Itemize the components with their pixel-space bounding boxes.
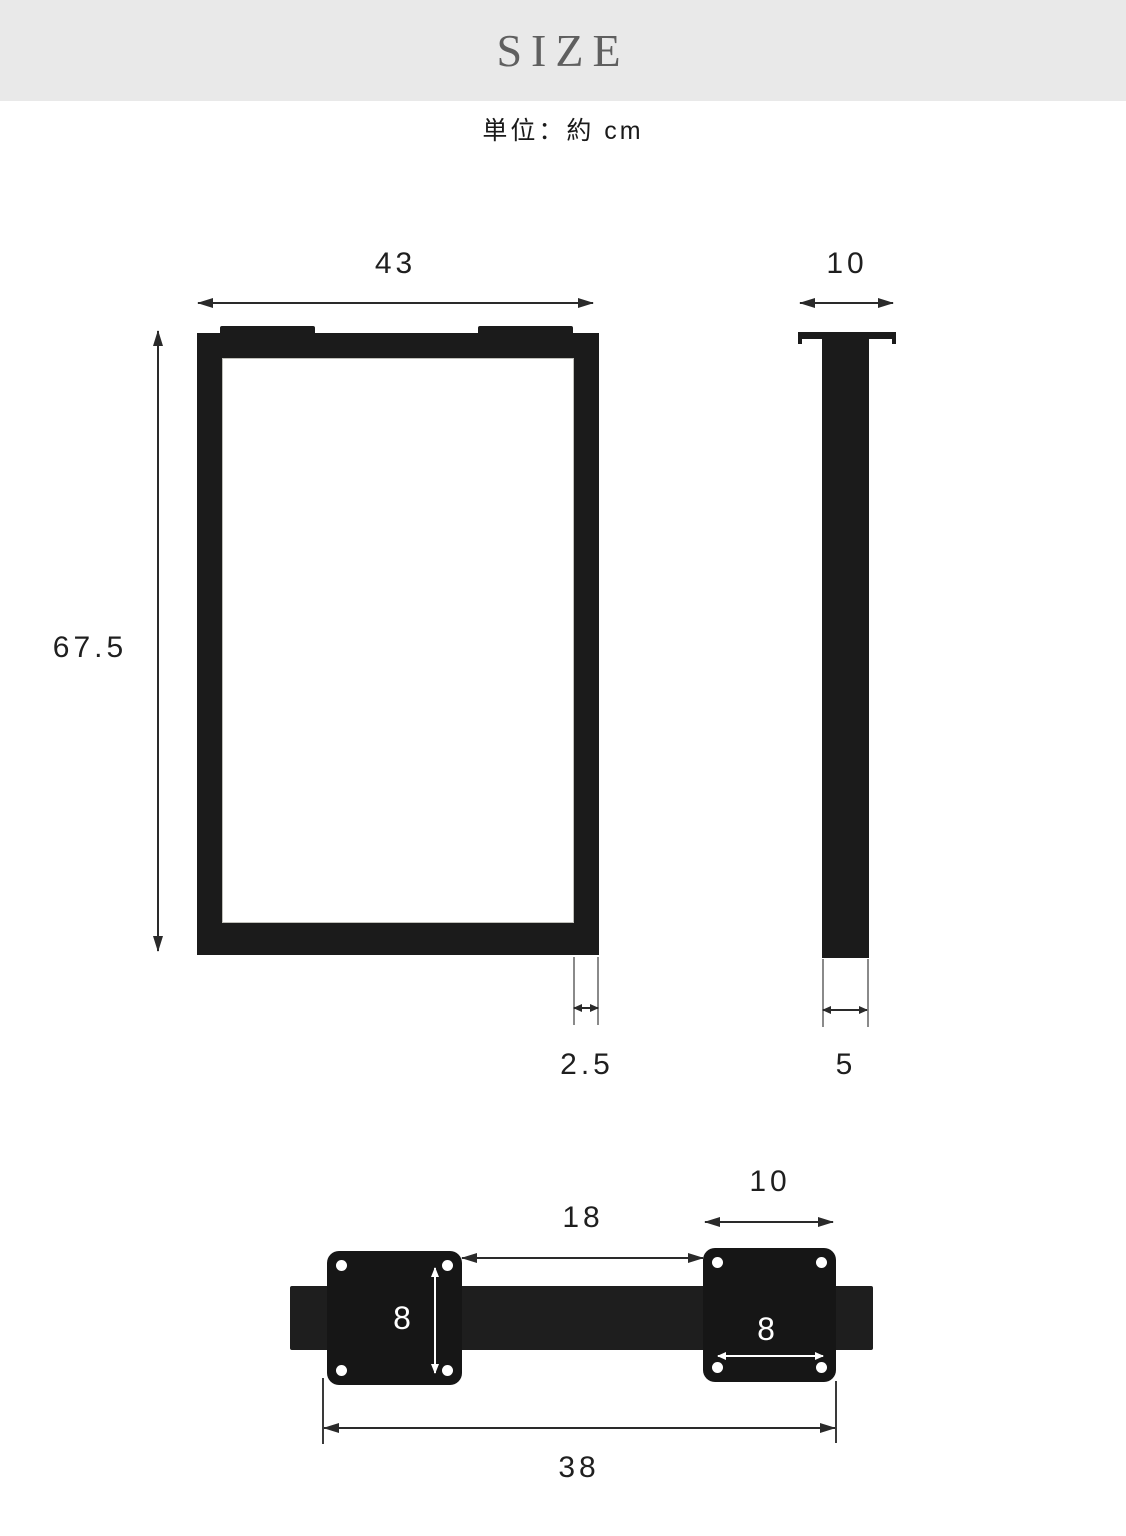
dim-hole-pitch-8-left-arrow (434, 1268, 436, 1373)
dim-height-67-5-label: 67.5 (30, 631, 150, 664)
extension-line (597, 957, 599, 1025)
flange-tip-left (798, 332, 802, 344)
dim-hole-pitch-8-left-label: 8 (379, 1301, 429, 1336)
dim-leg-depth-5-label: 5 (799, 1048, 893, 1081)
dim-overall-length-38-arrow (324, 1427, 835, 1429)
size-diagram-page: SIZE 単位：約 cm 43 67.5 2.5 10 5 10 18 8 8 (0, 0, 1126, 1536)
extension-line (573, 957, 575, 1025)
size-title: SIZE (0, 0, 1126, 101)
side-view-leg-column (822, 338, 869, 958)
dim-leg-thickness-2-5-arrow (574, 1007, 598, 1009)
screw-hole (442, 1365, 453, 1376)
extension-line (822, 959, 824, 1027)
extension-line (835, 1381, 837, 1443)
screw-hole (712, 1362, 723, 1373)
dim-plate-width-10-label: 10 (710, 1165, 830, 1198)
unit-label: 単位：約 cm (0, 111, 1126, 147)
dim-plate-width-10-arrow (705, 1221, 833, 1223)
dim-width-43-label: 43 (198, 247, 593, 280)
front-view-leg-frame (197, 333, 599, 955)
size-header-band: SIZE (0, 0, 1126, 101)
dim-depth-10-arrow (800, 302, 893, 304)
screw-hole (712, 1257, 723, 1268)
extension-line (322, 1378, 324, 1444)
screw-hole (336, 1365, 347, 1376)
dim-inner-span-18-arrow (462, 1257, 703, 1259)
dim-leg-thickness-2-5-label: 2.5 (535, 1048, 639, 1081)
screw-hole (336, 1260, 347, 1271)
dim-leg-depth-5-arrow (823, 1009, 867, 1011)
extension-line (867, 959, 869, 1027)
dim-depth-10-label: 10 (800, 247, 894, 280)
dim-height-67-5-arrow (157, 331, 159, 951)
dim-hole-pitch-8-right-label: 8 (743, 1312, 793, 1347)
flange-tip-right (892, 332, 896, 344)
dim-inner-span-18-label: 18 (523, 1201, 643, 1234)
dim-hole-pitch-8-right-arrow (718, 1355, 823, 1357)
screw-hole (816, 1362, 827, 1373)
dim-overall-length-38-label: 38 (519, 1451, 639, 1484)
screw-hole (816, 1257, 827, 1268)
dim-width-43-arrow (198, 302, 593, 304)
screw-hole (442, 1260, 453, 1271)
